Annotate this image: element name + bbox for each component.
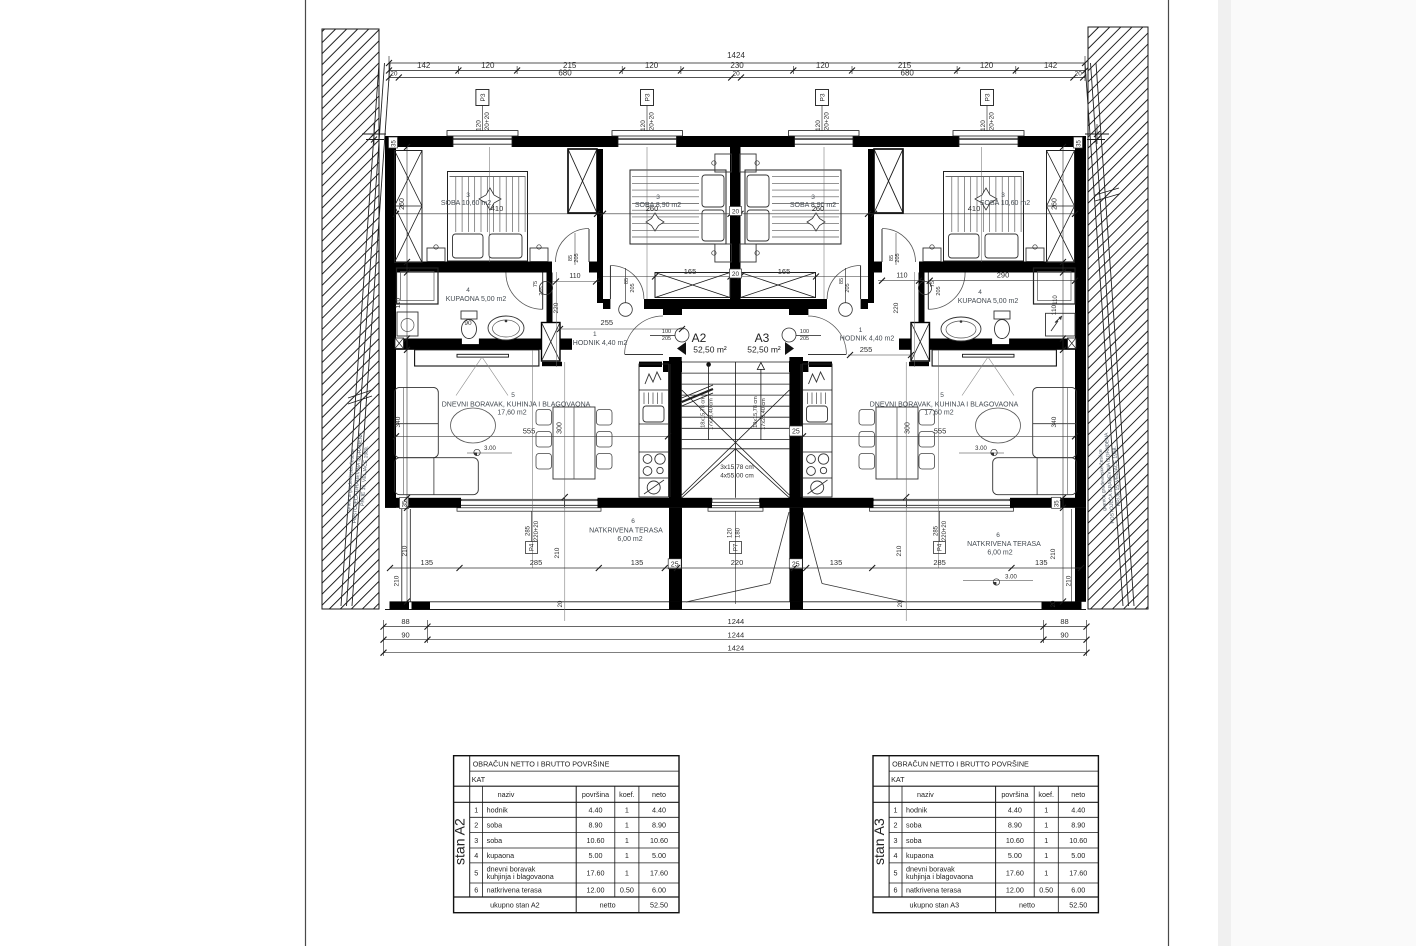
svg-text:1: 1 <box>625 821 629 830</box>
svg-text:205: 205 <box>800 336 809 342</box>
svg-text:netto: netto <box>1019 901 1035 910</box>
svg-text:4x55,00 cm: 4x55,00 cm <box>720 473 754 480</box>
svg-text:35: 35 <box>403 500 409 507</box>
svg-text:naziv: naziv <box>917 790 934 799</box>
svg-text:75: 75 <box>930 281 936 287</box>
svg-text:kupaona: kupaona <box>906 851 934 860</box>
svg-text:135: 135 <box>1035 558 1048 567</box>
svg-text:555: 555 <box>934 427 947 436</box>
svg-text:300: 300 <box>905 422 912 434</box>
svg-text:P4: P4 <box>938 543 944 551</box>
svg-text:120: 120 <box>728 527 734 538</box>
svg-text:180: 180 <box>736 527 742 538</box>
svg-text:kuhjinja i blagovaona: kuhjinja i blagovaona <box>906 872 973 881</box>
svg-text:1: 1 <box>625 851 629 860</box>
svg-text:NATKRIVENA TERASA: NATKRIVENA TERASA <box>589 528 663 535</box>
svg-text:1: 1 <box>894 805 898 814</box>
svg-text:210: 210 <box>1050 548 1057 559</box>
svg-text:1424: 1424 <box>728 643 745 652</box>
svg-text:110: 110 <box>896 273 907 280</box>
svg-text:205: 205 <box>539 286 545 295</box>
svg-text:3: 3 <box>811 194 815 201</box>
svg-text:1: 1 <box>474 805 478 814</box>
svg-text:1: 1 <box>1044 851 1048 860</box>
svg-text:6: 6 <box>631 518 635 525</box>
svg-text:88: 88 <box>401 617 409 626</box>
svg-text:205: 205 <box>662 336 671 342</box>
svg-text:120: 120 <box>815 120 822 131</box>
svg-text:naziv: naziv <box>498 790 515 799</box>
svg-text:17x28,40 cm: 17x28,40 cm <box>761 398 767 430</box>
svg-text:0.50: 0.50 <box>620 886 634 895</box>
svg-text:natkrivena terasa: natkrivena terasa <box>906 886 961 895</box>
svg-text:6: 6 <box>996 532 1000 539</box>
svg-text:4: 4 <box>894 851 898 860</box>
svg-text:hodnik: hodnik <box>906 805 928 814</box>
svg-text:165: 165 <box>684 267 697 276</box>
svg-text:ukupno stan A3: ukupno stan A3 <box>910 901 960 910</box>
svg-text:10.60: 10.60 <box>587 836 605 845</box>
svg-text:3.00: 3.00 <box>484 446 496 452</box>
svg-text:285: 285 <box>933 558 946 567</box>
svg-text:1: 1 <box>1044 805 1048 814</box>
svg-text:3.00: 3.00 <box>975 446 987 452</box>
svg-text:3: 3 <box>894 836 898 845</box>
svg-text:8.90: 8.90 <box>589 821 603 830</box>
svg-text:20: 20 <box>732 209 740 216</box>
svg-text:3.00: 3.00 <box>1005 575 1017 581</box>
svg-text:kuhjinja i blagovaona: kuhjinja i blagovaona <box>487 872 554 881</box>
svg-text:4: 4 <box>474 851 478 860</box>
svg-text:0.50: 0.50 <box>1039 886 1053 895</box>
svg-text:5: 5 <box>474 869 478 878</box>
svg-text:10.60: 10.60 <box>1006 836 1024 845</box>
svg-text:135: 135 <box>421 558 434 567</box>
svg-text:410: 410 <box>491 204 504 213</box>
svg-text:210: 210 <box>554 547 561 558</box>
svg-text:5: 5 <box>511 392 515 399</box>
svg-text:120: 120 <box>645 61 659 70</box>
svg-text:142: 142 <box>1044 61 1058 70</box>
svg-text:NATKRIVENA TERASA: NATKRIVENA TERASA <box>967 541 1041 548</box>
svg-text:110: 110 <box>569 273 580 280</box>
svg-text:135: 135 <box>830 558 843 567</box>
svg-text:OBRAČUN NETTO I BRUTTO POVRŠIN: OBRAČUN NETTO I BRUTTO POVRŠINE <box>473 760 610 769</box>
svg-text:4: 4 <box>466 287 470 294</box>
svg-text:1: 1 <box>593 331 597 338</box>
svg-text:260: 260 <box>1052 198 1059 210</box>
svg-text:kupaona: kupaona <box>487 851 515 860</box>
svg-text:A2: A2 <box>692 331 707 345</box>
svg-text:stan A2: stan A2 <box>452 818 468 865</box>
svg-text:4.40: 4.40 <box>1071 805 1085 814</box>
svg-text:SOBA 10,60 m2: SOBA 10,60 m2 <box>980 200 1030 207</box>
svg-text:120: 120 <box>816 61 830 70</box>
svg-text:3: 3 <box>1001 192 1005 199</box>
svg-text:1: 1 <box>625 805 629 814</box>
svg-text:4.40: 4.40 <box>652 805 666 814</box>
svg-text:6,00 m2: 6,00 m2 <box>617 536 642 543</box>
svg-text:2: 2 <box>474 821 478 830</box>
svg-text:20: 20 <box>558 600 564 607</box>
svg-text:5.00: 5.00 <box>1008 851 1022 860</box>
svg-text:8.90: 8.90 <box>652 821 666 830</box>
svg-text:210: 210 <box>1066 575 1073 586</box>
svg-text:110: 110 <box>395 297 402 308</box>
svg-text:340: 340 <box>395 416 402 427</box>
svg-text:680: 680 <box>558 69 572 78</box>
svg-text:25: 25 <box>792 561 800 568</box>
svg-text:555: 555 <box>523 427 536 436</box>
svg-text:P3: P3 <box>480 93 487 101</box>
svg-text:6.00: 6.00 <box>652 886 666 895</box>
svg-text:17.60: 17.60 <box>650 869 668 878</box>
svg-text:P3: P3 <box>985 93 992 101</box>
svg-text:20: 20 <box>732 71 740 78</box>
svg-text:3: 3 <box>656 194 660 201</box>
svg-text:100: 100 <box>800 329 809 335</box>
svg-text:5: 5 <box>894 869 898 878</box>
svg-text:220+20: 220+20 <box>942 520 948 541</box>
svg-text:85: 85 <box>839 278 845 284</box>
svg-text:3x15,78 cm: 3x15,78 cm <box>720 464 754 471</box>
svg-text:18x15,78 cm: 18x15,78 cm <box>753 396 759 428</box>
svg-text:25: 25 <box>792 429 800 436</box>
svg-text:90: 90 <box>401 630 409 639</box>
svg-text:1: 1 <box>625 836 629 845</box>
svg-text:17.60: 17.60 <box>1006 869 1024 878</box>
svg-text:4.40: 4.40 <box>1008 805 1022 814</box>
svg-text:1: 1 <box>859 327 863 334</box>
svg-text:410: 410 <box>968 204 981 213</box>
svg-text:75: 75 <box>533 281 539 287</box>
svg-text:6.00: 6.00 <box>1071 886 1085 895</box>
svg-text:neto: neto <box>652 790 666 799</box>
svg-text:P3: P3 <box>645 93 652 101</box>
svg-text:soba: soba <box>906 821 922 830</box>
svg-text:120: 120 <box>980 120 987 131</box>
svg-text:soba: soba <box>487 836 503 845</box>
svg-text:20: 20 <box>898 600 904 607</box>
svg-text:P7: P7 <box>734 543 740 551</box>
svg-text:KUPAONA 5,00 m2: KUPAONA 5,00 m2 <box>446 296 507 303</box>
svg-text:8.90: 8.90 <box>1008 821 1022 830</box>
svg-text:1: 1 <box>1044 869 1048 878</box>
svg-text:120: 120 <box>475 120 482 131</box>
svg-text:12.00: 12.00 <box>1006 886 1024 895</box>
svg-text:35: 35 <box>392 140 398 147</box>
svg-text:neto: neto <box>1071 790 1085 799</box>
svg-text:HODNIK 4,40 m2: HODNIK 4,40 m2 <box>840 336 895 343</box>
svg-text:10.60: 10.60 <box>650 836 668 845</box>
svg-text:KUPAONA 5,00 m2: KUPAONA 5,00 m2 <box>958 298 1019 305</box>
svg-text:285: 285 <box>530 558 543 567</box>
svg-text:52,50 m²: 52,50 m² <box>693 345 727 355</box>
svg-text:P3: P3 <box>820 93 827 101</box>
svg-text:260: 260 <box>646 204 659 213</box>
svg-text:soba: soba <box>487 821 503 830</box>
svg-text:20: 20 <box>732 271 740 278</box>
svg-text:255: 255 <box>601 318 614 327</box>
svg-text:35: 35 <box>1055 500 1061 507</box>
svg-text:205: 205 <box>936 286 942 295</box>
svg-text:680: 680 <box>901 69 915 78</box>
svg-text:12.00: 12.00 <box>587 886 605 895</box>
svg-text:210: 210 <box>896 545 903 556</box>
svg-text:hodnik: hodnik <box>487 805 509 814</box>
svg-text:5.00: 5.00 <box>589 851 603 860</box>
svg-text:17,60 m2: 17,60 m2 <box>924 410 953 417</box>
svg-text:20: 20 <box>1075 71 1083 78</box>
svg-text:52.50: 52.50 <box>1069 901 1087 910</box>
svg-text:88: 88 <box>1060 617 1068 626</box>
svg-text:ukupno stan A2: ukupno stan A2 <box>490 901 540 910</box>
svg-text:52,50 m²: 52,50 m² <box>747 345 781 355</box>
svg-text:6: 6 <box>474 886 478 895</box>
svg-text:DNEVNI BORAVAK, KUHINJA I BLAG: DNEVNI BORAVAK, KUHINJA I BLAGOVAONA <box>442 402 591 409</box>
svg-text:koef.: koef. <box>619 790 635 799</box>
svg-text:3: 3 <box>466 192 470 199</box>
svg-text:KAT: KAT <box>891 775 905 784</box>
svg-text:210: 210 <box>394 575 401 586</box>
svg-text:110: 110 <box>1051 304 1058 315</box>
svg-text:HODNIK 4,40 m2: HODNIK 4,40 m2 <box>573 340 628 347</box>
svg-text:255: 255 <box>860 345 873 354</box>
svg-text:6: 6 <box>894 886 898 895</box>
svg-text:85: 85 <box>624 278 630 284</box>
svg-text:17,60 m2: 17,60 m2 <box>497 410 526 417</box>
svg-text:5.00: 5.00 <box>1071 851 1085 860</box>
svg-text:52.50: 52.50 <box>650 901 668 910</box>
svg-text:4.40: 4.40 <box>589 805 603 814</box>
svg-text:230: 230 <box>730 61 744 70</box>
svg-text:20: 20 <box>390 71 398 78</box>
svg-text:OBRAČUN NETTO I BRUTTO POVRŠIN: OBRAČUN NETTO I BRUTTO POVRŠINE <box>892 760 1029 769</box>
svg-text:6,00 m2: 6,00 m2 <box>987 550 1012 557</box>
svg-text:120: 120 <box>640 120 647 131</box>
svg-text:205: 205 <box>630 283 636 292</box>
svg-text:18x15,78 cm: 18x15,78 cm <box>701 396 707 428</box>
svg-text:soba: soba <box>906 836 922 845</box>
svg-text:100: 100 <box>662 329 671 335</box>
svg-text:1244: 1244 <box>728 630 745 639</box>
svg-text:285: 285 <box>934 525 940 536</box>
svg-text:205: 205 <box>845 283 851 292</box>
svg-text:340: 340 <box>1051 416 1058 427</box>
svg-text:8.90: 8.90 <box>1071 821 1085 830</box>
svg-text:stan A3: stan A3 <box>871 818 887 865</box>
svg-text:1: 1 <box>1044 836 1048 845</box>
svg-text:17x28,40 cm: 17x28,40 cm <box>709 398 715 430</box>
svg-text:koef.: koef. <box>1038 790 1054 799</box>
svg-text:A3: A3 <box>755 331 770 345</box>
svg-text:1: 1 <box>625 869 629 878</box>
svg-text:142: 142 <box>417 61 431 70</box>
svg-text:netto: netto <box>600 901 616 910</box>
svg-text:290: 290 <box>997 271 1010 280</box>
svg-text:165: 165 <box>778 267 791 276</box>
svg-text:5.00: 5.00 <box>652 851 666 860</box>
svg-text:220: 220 <box>731 558 744 567</box>
svg-text:2: 2 <box>894 821 898 830</box>
svg-text:natkrivena terasa: natkrivena terasa <box>487 886 542 895</box>
svg-text:1: 1 <box>1044 821 1048 830</box>
svg-text:90: 90 <box>1060 630 1068 639</box>
svg-text:300: 300 <box>557 422 564 434</box>
svg-text:10.60: 10.60 <box>1069 836 1087 845</box>
svg-text:površina: površina <box>1001 790 1028 799</box>
svg-text:90: 90 <box>464 320 472 327</box>
svg-text:35: 35 <box>1077 140 1083 147</box>
svg-text:P4: P4 <box>530 543 536 551</box>
svg-text:KAT: KAT <box>472 775 486 784</box>
svg-text:110: 110 <box>1053 295 1059 305</box>
svg-text:3: 3 <box>474 836 478 845</box>
svg-text:DNEVNI BORAVAK, KUHINJA I BLAG: DNEVNI BORAVAK, KUHINJA I BLAGOVAONA <box>870 402 1019 409</box>
svg-text:17.60: 17.60 <box>587 869 605 878</box>
svg-text:površina: površina <box>582 790 609 799</box>
svg-text:4: 4 <box>978 289 982 296</box>
svg-text:20: 20 <box>1051 600 1057 607</box>
svg-text:260: 260 <box>812 204 825 213</box>
svg-text:1424: 1424 <box>727 51 745 60</box>
svg-text:285: 285 <box>526 525 532 536</box>
svg-text:135: 135 <box>631 558 644 567</box>
svg-text:1244: 1244 <box>728 617 745 626</box>
svg-text:120: 120 <box>481 61 495 70</box>
svg-text:5: 5 <box>940 392 944 399</box>
svg-text:120: 120 <box>980 61 994 70</box>
svg-text:220+20: 220+20 <box>534 520 540 541</box>
svg-text:210: 210 <box>402 545 409 556</box>
svg-text:17.60: 17.60 <box>1069 869 1087 878</box>
svg-text:260: 260 <box>399 198 406 210</box>
svg-text:SOBA 10,60 m2: SOBA 10,60 m2 <box>441 200 491 207</box>
svg-text:220: 220 <box>893 302 900 313</box>
